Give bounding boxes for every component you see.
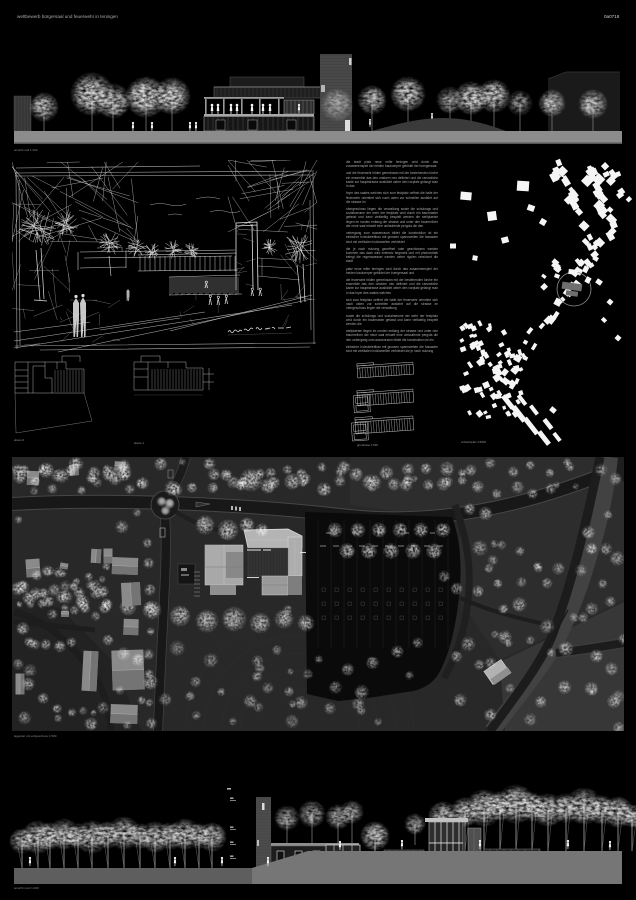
svg-text:schwarzplan 1:5000: schwarzplan 1:5000 — [461, 440, 486, 444]
svg-text:ebene 1: ebene 1 — [134, 441, 145, 445]
svg-text:ansicht süd 1:200: ansicht süd 1:200 — [14, 148, 38, 152]
svg-text:ebene 0: ebene 0 — [14, 438, 25, 442]
svg-text:lageplan mit erdgeschoss 1:500: lageplan mit erdgeschoss 1:500 — [14, 734, 57, 738]
svg-text:grundrisse 1:500: grundrisse 1:500 — [357, 443, 378, 447]
svg-text:ansicht nord 1:200: ansicht nord 1:200 — [14, 886, 39, 890]
